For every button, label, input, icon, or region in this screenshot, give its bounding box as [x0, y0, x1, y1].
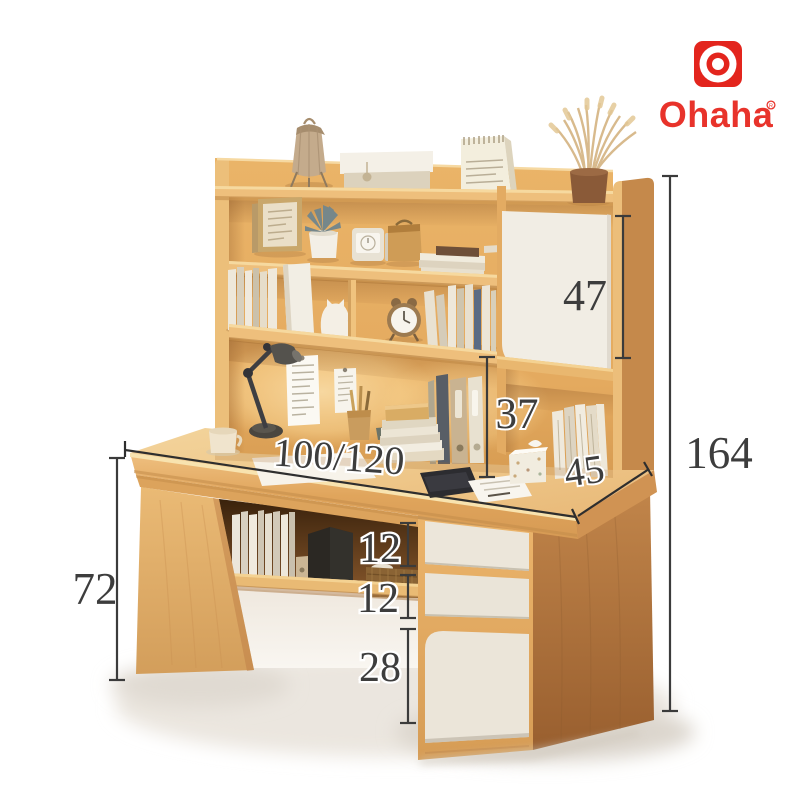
svg-text:37: 37 [496, 391, 539, 438]
svg-text:28: 28 [359, 645, 401, 691]
svg-text:Ohaha: Ohaha [659, 94, 774, 135]
svg-text:12: 12 [357, 576, 399, 622]
svg-text:72: 72 [73, 564, 118, 614]
svg-text:R: R [769, 104, 773, 110]
svg-text:164: 164 [685, 428, 753, 478]
svg-text:12: 12 [359, 526, 401, 572]
svg-text:47: 47 [563, 271, 607, 320]
svg-text:100/120: 100/120 [272, 430, 406, 484]
svg-text:45: 45 [561, 446, 607, 496]
